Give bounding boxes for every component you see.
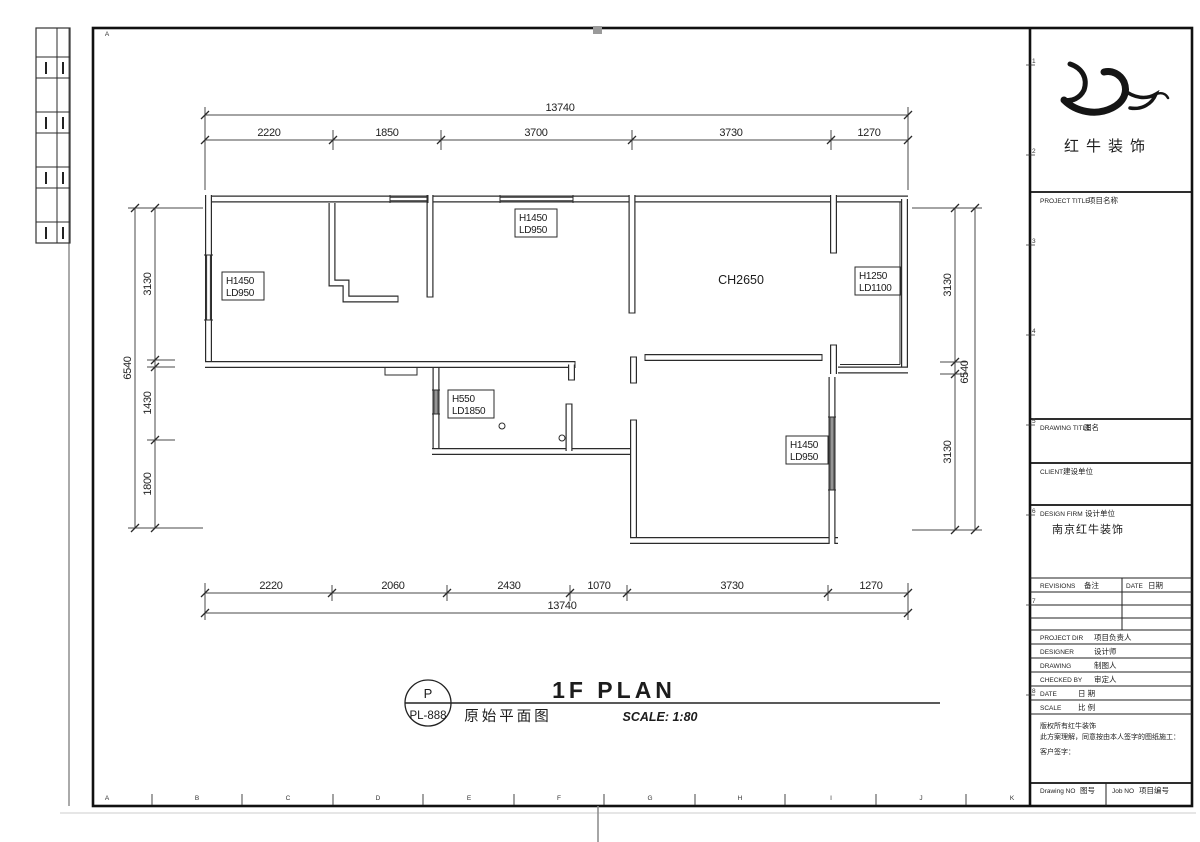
dim-text: 3700: [524, 127, 547, 139]
dim-text: 1850: [375, 127, 398, 139]
floor-plan-walls: [205, 195, 908, 544]
note-line: 此方案理解，同意按由本人签字的图纸施工：: [1040, 732, 1180, 741]
staff-row-label-cn: 审定人: [1094, 674, 1117, 684]
dimension-top: 13740 2220 1850 3700 3730 1270: [201, 102, 912, 190]
note-line: 客户签字：: [1040, 747, 1075, 756]
staff-row-label-en: SCALE: [1040, 705, 1062, 712]
dimension-left: 3130 1430 1800 6540: [122, 204, 203, 532]
dim-text: 1270: [857, 127, 880, 139]
grid-letter: C: [286, 795, 291, 802]
window-tag-text: LD1100: [859, 283, 892, 294]
window-tag-text: H1450: [226, 276, 255, 287]
date-header-cn: 日期: [1148, 581, 1163, 590]
note-line: 版权所有红牛装饰: [1040, 721, 1096, 730]
badge-letter: P: [424, 686, 433, 701]
grid-letter: E: [467, 795, 472, 802]
drawing-caption: P PL-888 1F PLAN 原始平面图 SCALE: 1:80: [405, 677, 940, 726]
window-tag-text: H1450: [519, 213, 548, 224]
revisions-header-en: REVISIONS: [1040, 583, 1076, 590]
drain-symbol: [559, 435, 565, 441]
dim-text: 3730: [719, 127, 742, 139]
dim-text: 13740: [545, 102, 574, 114]
window-tag-text: H1450: [790, 440, 819, 451]
binding-strip: [36, 28, 70, 243]
drawing-sheet: H1450 LD950 H1450 LD950 H1250 LD1100 H55…: [0, 0, 1200, 842]
date-header-en: DATE: [1126, 583, 1144, 590]
copyright-note: 版权所有红牛装饰 此方案理解，同意按由本人签字的图纸施工： 客户签字：: [1040, 721, 1180, 756]
window-tag: H1450 LD950: [222, 272, 264, 300]
grid-letter: J: [919, 795, 922, 802]
dim-text: 6540: [122, 356, 134, 379]
staff-row-label-en: DRAWING: [1040, 663, 1071, 670]
dim-text: 2220: [257, 127, 280, 139]
design-firm-value: 南京红牛装饰: [1052, 522, 1124, 536]
field-client-cn: 建设单位: [1063, 466, 1093, 476]
grid-letter: G: [647, 795, 652, 802]
grid-letter: B: [195, 795, 199, 802]
window-tags: H1450 LD950 H1450 LD950 H1250 LD1100 H55…: [222, 209, 901, 464]
badge-number: PL-888: [409, 710, 446, 722]
dim-text: 3130: [942, 440, 954, 463]
brand-name: 红牛装饰: [1064, 138, 1152, 155]
grid-number: 1: [1032, 58, 1036, 65]
field-project-title-en: PROJECT TITLE: [1040, 198, 1090, 205]
staff-row-label-cn: 制图人: [1094, 660, 1117, 670]
grid-number: 6: [1032, 508, 1036, 515]
fold-marks: [593, 26, 602, 842]
staff-row-label-en: PROJECT DIR: [1040, 635, 1084, 642]
drawing-title-cn: 原始平面图: [464, 708, 552, 725]
drawing-no-label-cn: 图号: [1080, 786, 1095, 795]
staff-row-label-en: CHECKED BY: [1040, 677, 1083, 684]
grid-number: 4: [1032, 328, 1036, 335]
staff-row-label-en: DATE: [1040, 691, 1058, 698]
dim-text: 2060: [381, 580, 404, 592]
staff-row-label-cn: 比 例: [1078, 702, 1095, 712]
grid-number: 8: [1032, 688, 1036, 695]
window-tag-text: LD950: [226, 288, 255, 299]
grid-letter: K: [1010, 795, 1015, 802]
staff-row-label-cn: 项目负责人: [1094, 632, 1132, 642]
dim-text: 13740: [547, 600, 576, 612]
window-tag: H550 LD1850: [448, 390, 494, 418]
staff-row-label-cn: 日 期: [1078, 689, 1095, 698]
window-tag: H1450 LD950: [515, 209, 557, 237]
window-tag-text: LD950: [790, 452, 819, 463]
grid-number: 3: [1032, 238, 1036, 245]
job-no-label-en: Job NO: [1112, 788, 1134, 795]
dim-text: 2220: [259, 580, 282, 592]
dim-text: 3730: [720, 580, 743, 592]
staff-row-label-cn: 设计师: [1094, 646, 1117, 656]
dim-text: 3130: [942, 273, 954, 296]
job-no-label-cn: 项目编号: [1139, 785, 1169, 795]
revisions-header-cn: 备注: [1084, 580, 1100, 590]
grid-letter-top: A: [105, 31, 110, 38]
field-design-firm-cn: 设计单位: [1085, 508, 1115, 518]
title-block: 红牛装饰 PROJECT TITLE 项目名称 DRAWING TITLE 图名…: [1030, 64, 1192, 806]
dim-text: 1430: [142, 391, 154, 414]
drawing-no-label-en: Drawing NO: [1040, 788, 1075, 795]
grid-number: 5: [1032, 418, 1036, 425]
dim-text: 2430: [497, 580, 520, 592]
grid-number: 2: [1032, 148, 1036, 155]
window-tag: H1250 LD1100: [855, 267, 901, 295]
field-project-title-cn: 项目名称: [1088, 195, 1118, 205]
window-tag-text: LD950: [519, 225, 548, 236]
grid-letter: A: [105, 795, 110, 802]
window-tag: H1450 LD950: [786, 436, 828, 464]
field-client-en: CLIENT: [1040, 469, 1063, 476]
drawing-scale: SCALE: 1:80: [622, 710, 697, 724]
field-design-firm-en: DESIGN FIRM: [1040, 511, 1083, 518]
grid-letters-bottom: A B C D E F G H I J K: [105, 794, 1015, 805]
grid-letter: F: [557, 795, 561, 802]
field-drawing-title-cn: 图名: [1084, 422, 1099, 432]
dimension-bottom: 2220 2060 2430 1070 3730 1270 13740: [201, 580, 912, 620]
grid-number: 7: [1032, 598, 1036, 605]
drain-symbol: [499, 423, 505, 429]
window-tag-text: H1250: [859, 271, 888, 282]
dim-text: 1070: [587, 580, 610, 592]
window-tag-text: H550: [452, 394, 475, 405]
ceiling-height-note: CH2650: [718, 273, 764, 287]
brand-logo: [1064, 64, 1168, 112]
dim-text: 6540: [959, 360, 971, 383]
grid-letter: H: [738, 795, 743, 802]
dimension-right: 3130 3130 6540: [912, 204, 982, 534]
window-tag-text: LD1850: [452, 406, 486, 417]
drawing-title-en: 1F PLAN: [552, 677, 676, 703]
dim-text: 1800: [142, 472, 154, 495]
binding-strip-marks: [46, 62, 63, 239]
dim-text: 3130: [142, 272, 154, 295]
dim-text: 1270: [859, 580, 882, 592]
staff-row-label-en: DESIGNER: [1040, 649, 1074, 656]
grid-letter: I: [830, 795, 832, 802]
grid-letter: D: [376, 795, 381, 802]
